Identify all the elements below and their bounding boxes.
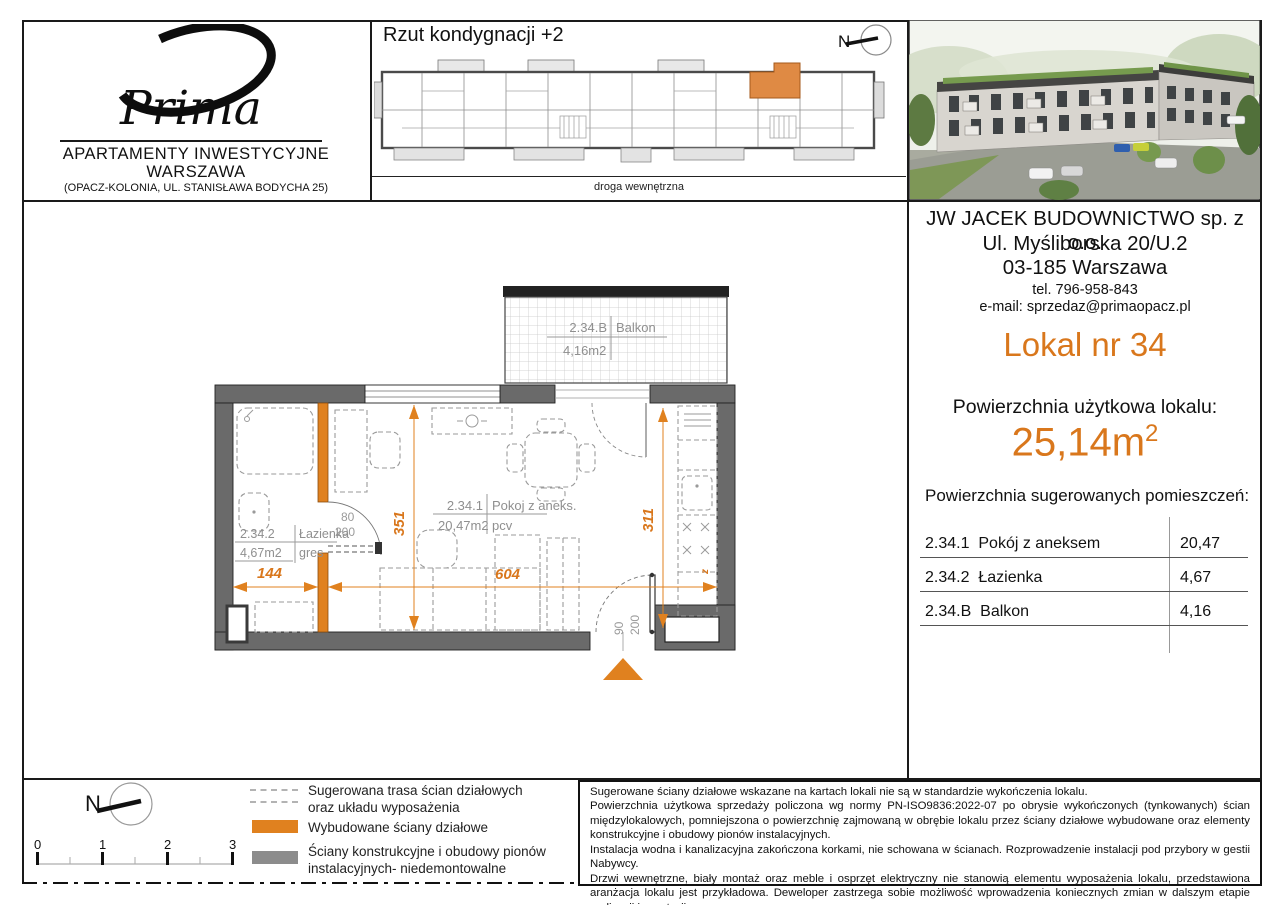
usable-area-label: Powierzchnia użytkowa lokalu: <box>908 396 1262 419</box>
room-labels: 2.34.1 Pokoj z aneks. 20,47m2 pcv <box>438 498 577 533</box>
room-row-1-line <box>920 557 1248 558</box>
stove-burners <box>683 523 709 554</box>
coffee-table-icon <box>417 530 457 568</box>
legend-orange-swatch <box>252 820 298 833</box>
legend-item3-line1: Ściany konstrukcyjne i obudowy pionów <box>308 844 546 860</box>
balcony-code: 2.34.B <box>569 320 607 335</box>
shaft-niche-right <box>665 617 719 642</box>
usable-area-number: 25,14m <box>1012 420 1145 464</box>
room-1-code: 2.34.1 <box>925 535 969 552</box>
basin-drain <box>252 510 255 513</box>
room-3-code: 2.34.B <box>925 603 971 620</box>
room-floor: pcv <box>492 518 513 533</box>
disclaimer-box: Sugerowane ściany działowe wskazane na k… <box>578 780 1262 886</box>
scale-bar: 0 1 2 3 <box>28 838 243 872</box>
disclaimer-p3: Instalacja wodna i kanalizacyjna zakończ… <box>590 843 1250 872</box>
bath-floor: gres <box>299 546 323 560</box>
room-row-3: 2.34.B Balkon <box>925 603 1029 621</box>
compass-top-icon: N <box>838 20 900 62</box>
bath-door-width: 80 <box>341 510 355 524</box>
divider-logo-overview <box>370 20 372 202</box>
room-2-code: 2.34.2 <box>925 569 969 586</box>
tv-icon <box>466 415 478 427</box>
page-border-bottom-dashdot <box>22 882 578 884</box>
compass-bottom-icon: N <box>85 780 165 830</box>
building-render-image <box>909 20 1260 200</box>
sink-drain <box>695 484 698 487</box>
scale-0: 0 <box>34 838 41 852</box>
desk-chair-icon <box>370 432 400 468</box>
chair-top-icon <box>537 419 565 432</box>
room-row-2: 2.34.2 Łazienka <box>925 569 1042 587</box>
company-street: Ul. Myśliborska 20/U.2 <box>908 232 1262 256</box>
room-3-area: 4,16 <box>1180 603 1211 621</box>
dim-351: 351 <box>391 511 408 536</box>
room-code: 2.34.1 <box>447 498 483 513</box>
shower-head-icon <box>245 417 250 422</box>
legend-gray-swatch <box>252 851 298 864</box>
scale-labels: 0 1 2 3 <box>34 838 236 852</box>
dining-table-icon <box>525 433 577 487</box>
dim-z: z <box>700 569 711 575</box>
room-2-name: Łazienka <box>978 569 1042 586</box>
room-row-3-line <box>920 625 1248 626</box>
legend-dashed-swatch-2 <box>250 801 298 803</box>
legend-item2: Wybudowane ściany działowe <box>308 820 488 836</box>
bath-code: 2.34.2 <box>240 527 275 541</box>
bath-name: Łazienka <box>299 527 349 541</box>
logo-brand-text: Prima <box>119 81 262 136</box>
legend-item3-line2: instalacyjnych- niedemontowalne <box>308 861 506 877</box>
chair-left-icon <box>507 444 523 472</box>
kitchen-sink-icon <box>682 476 712 510</box>
room-1-area: 20,47 <box>1180 535 1220 553</box>
balcony-area: 4,16m2 <box>563 343 606 358</box>
room-2-area: 4,67 <box>1180 569 1211 587</box>
entry-door-height: 200 <box>628 615 642 635</box>
building-overview-plan <box>374 58 902 170</box>
balcony-name: Balkon <box>616 320 656 335</box>
room-1-name: Pokój z aneksem <box>978 535 1100 552</box>
logo-title-line2: WARSZAWA <box>22 163 370 182</box>
window <box>365 385 500 403</box>
disclaimer-p4: Drzwi wewnętrzne, biały montaż oraz mebl… <box>590 872 1250 905</box>
scale-2: 2 <box>164 838 171 852</box>
bathtub-icon <box>237 408 313 474</box>
scale-1: 1 <box>99 838 106 852</box>
balcony-door <box>555 390 650 457</box>
balcony: 2.34.B Balkon 4,16m2 <box>503 286 729 383</box>
legend-item1-line2: oraz układu wyposażenia <box>308 800 460 816</box>
road-line <box>372 176 906 177</box>
room-row-1: 2.34.1 Pokój z aneksem <box>925 535 1100 553</box>
company-email: e-mail: sprzedaz@primaopacz.pl <box>908 299 1262 315</box>
room-row-2-line <box>920 591 1248 592</box>
tv-stand-icon <box>432 408 512 434</box>
shower-arm <box>247 410 253 416</box>
road-label: droga wewnętrzna <box>372 181 906 193</box>
dim-311: 311 <box>640 508 657 532</box>
overview-title: Rzut kondygnacji +2 <box>383 24 564 47</box>
rooms-header: Powierzchnia sugerowanych pomieszczeń: <box>925 486 1249 506</box>
chair-right-icon <box>579 444 595 472</box>
unit-title: Lokal nr 34 <box>908 326 1262 364</box>
room-area: 20,47m2 <box>438 518 489 533</box>
room-name: Pokoj z aneks. <box>492 498 577 513</box>
apartment-floor-plan: 2.34.B Balkon 4,16m2 <box>195 280 755 710</box>
divider-header <box>22 200 1262 202</box>
logo-title-line1: APARTAMENTY INWESTYCYJNE <box>22 145 370 164</box>
wardrobe-icon <box>547 538 579 630</box>
rooms-table-divider <box>1169 517 1170 653</box>
bath-cabinet-icon <box>255 602 313 632</box>
compass-top-label: N <box>838 32 850 51</box>
dim-144: 144 <box>257 565 283 582</box>
entrance-door: 90 200 <box>596 573 655 651</box>
legend-dashed-swatch-1 <box>250 789 298 791</box>
logo-underline <box>60 140 322 142</box>
partition-walls: 80 200 <box>318 403 382 632</box>
company-phone: tel. 796-958-843 <box>908 282 1262 298</box>
prima-logo: Prima <box>70 24 320 142</box>
dim-604: 604 <box>495 566 521 583</box>
overview-highlighted-unit <box>750 63 800 98</box>
scale-3: 3 <box>229 838 236 852</box>
company-city: 03-185 Warszawa <box>908 256 1262 280</box>
bath-area: 4,67m2 <box>240 546 282 560</box>
legend-item1-line1: Sugerowana trasa ścian działowych <box>308 783 523 799</box>
usable-area-value: 25,14m2 <box>908 420 1262 465</box>
entrance-arrow <box>603 658 643 680</box>
disclaimer-p1: Sugerowane ściany działowe wskazane na k… <box>590 785 1250 799</box>
room-3-name: Balkon <box>980 603 1029 620</box>
bathroom-fixtures <box>237 408 313 632</box>
fridge-marks <box>684 414 711 426</box>
shaft-niche-left <box>227 606 247 642</box>
compass-bottom-label: N <box>85 791 101 816</box>
entry-door-width: 90 <box>612 621 626 635</box>
kitchen-counter-icon <box>678 406 717 616</box>
lokal-card-page: Prima APARTAMENTY INWESTYCYJNE WARSZAWA … <box>0 0 1280 905</box>
logo-subtitle: (OPACZ-KOLONIA, UL. STANISŁAWA BODYCHA 2… <box>22 182 370 194</box>
usable-area-sup: 2 <box>1145 420 1158 447</box>
desk-icon <box>335 410 367 492</box>
disclaimer-p2: Powierzchnia użytkowa sprzedaży policzon… <box>590 799 1250 842</box>
overview-terraces-bottom <box>394 148 854 162</box>
